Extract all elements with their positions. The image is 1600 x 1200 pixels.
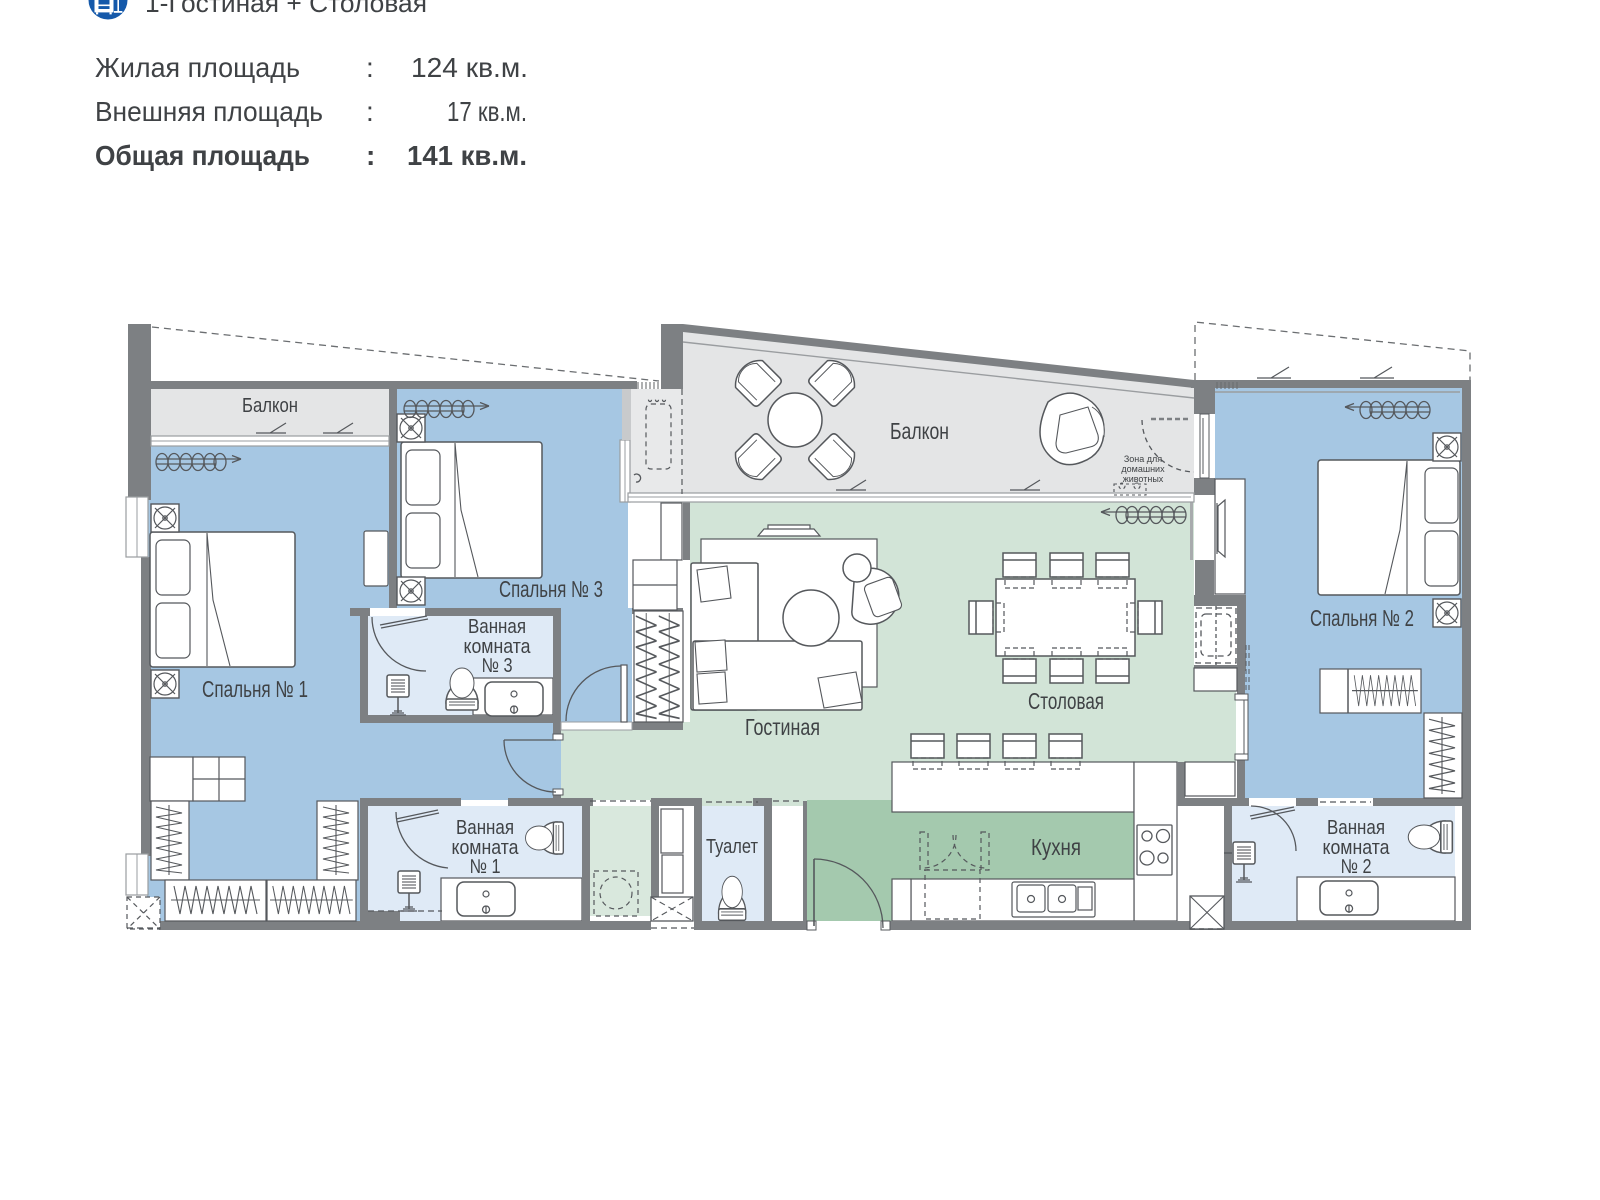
svg-text::: : <box>366 96 374 127</box>
svg-text:1-Гостиная + Столовая: 1-Гостиная + Столовая <box>145 0 427 18</box>
svg-text:Спальня № 2: Спальня № 2 <box>1310 605 1414 631</box>
svg-text:Туалет: Туалет <box>706 836 758 858</box>
svg-text:Внешняя площадь: Внешняя площадь <box>95 96 323 127</box>
svg-text:Зона для: Зона для <box>1124 454 1162 464</box>
svg-text:Ванная: Ванная <box>468 616 526 638</box>
svg-text:124 кв.м.: 124 кв.м. <box>411 52 528 83</box>
svg-text::: : <box>366 140 375 171</box>
svg-text:Общая площадь: Общая площадь <box>95 140 310 171</box>
svg-text:Спальня № 1: Спальня № 1 <box>202 676 308 702</box>
svg-text:17 кв.м.: 17 кв.м. <box>447 96 527 127</box>
svg-text:Столовая: Столовая <box>1028 688 1104 714</box>
svg-text::: : <box>366 52 374 83</box>
svg-text:Ванная: Ванная <box>456 817 514 839</box>
svg-text:141 кв.м.: 141 кв.м. <box>407 140 527 171</box>
svg-text:домашних: домашних <box>1121 464 1165 474</box>
svg-text:№ 2: № 2 <box>1341 856 1372 878</box>
svg-text:Спальня № 3: Спальня № 3 <box>499 576 603 602</box>
svg-text:Кухня: Кухня <box>1031 834 1081 860</box>
svg-text:№ 1: № 1 <box>470 856 501 878</box>
svg-text:Жилая площадь: Жилая площадь <box>95 52 300 83</box>
svg-text:Ванная: Ванная <box>1327 817 1385 839</box>
svg-text:Балкон: Балкон <box>890 418 949 444</box>
svg-text:Гостиная: Гостиная <box>745 714 820 740</box>
svg-text:животных: животных <box>1123 474 1164 484</box>
svg-text:№ 3: № 3 <box>482 655 513 677</box>
svg-text:Балкон: Балкон <box>242 395 298 417</box>
